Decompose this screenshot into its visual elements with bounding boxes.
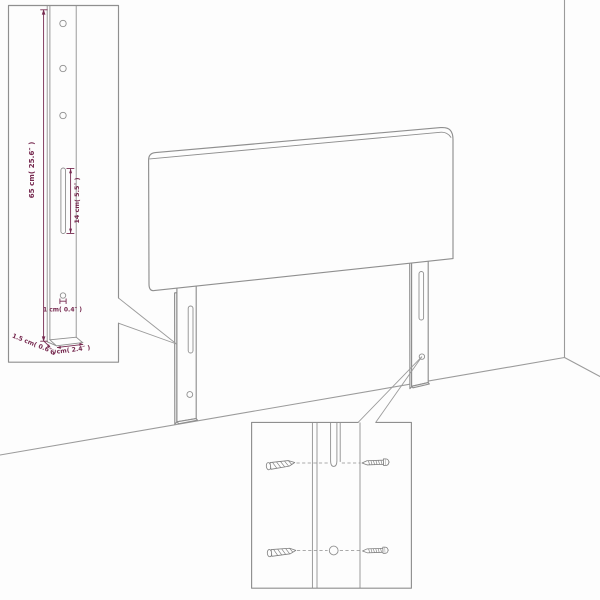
left-callout-upper-line	[119, 298, 177, 344]
diagram-svg: 65 cm( 25.6″ ) 14 cm( 5.5″ ) 1 cm( 0.4″ …	[0, 0, 600, 600]
callout-lines	[119, 298, 422, 422]
right-callout-left-line	[358, 357, 422, 423]
dim-slot-label: 14 cm( 5.5″ )	[73, 177, 81, 223]
inset-screw-detail	[252, 422, 412, 588]
left-callout-lower-line	[119, 323, 177, 344]
floor-line-right	[565, 358, 600, 377]
assembly-diagram: 65 cm( 25.6″ ) 14 cm( 5.5″ ) 1 cm( 0.4″ …	[0, 0, 600, 600]
left-leg	[175, 286, 198, 425]
inset-leg-detail: 65 cm( 25.6″ ) 14 cm( 5.5″ ) 1 cm( 0.4″ …	[9, 6, 119, 363]
panel-front-face	[149, 128, 453, 291]
headboard-panel	[149, 128, 453, 291]
left-leg-front-face	[177, 286, 196, 422]
dim-height-label: 65 cm( 25.6″ )	[27, 142, 36, 199]
inset-screw-box	[252, 422, 412, 588]
dim-hole-label: 1 cm( 0.4″ )	[43, 307, 82, 314]
